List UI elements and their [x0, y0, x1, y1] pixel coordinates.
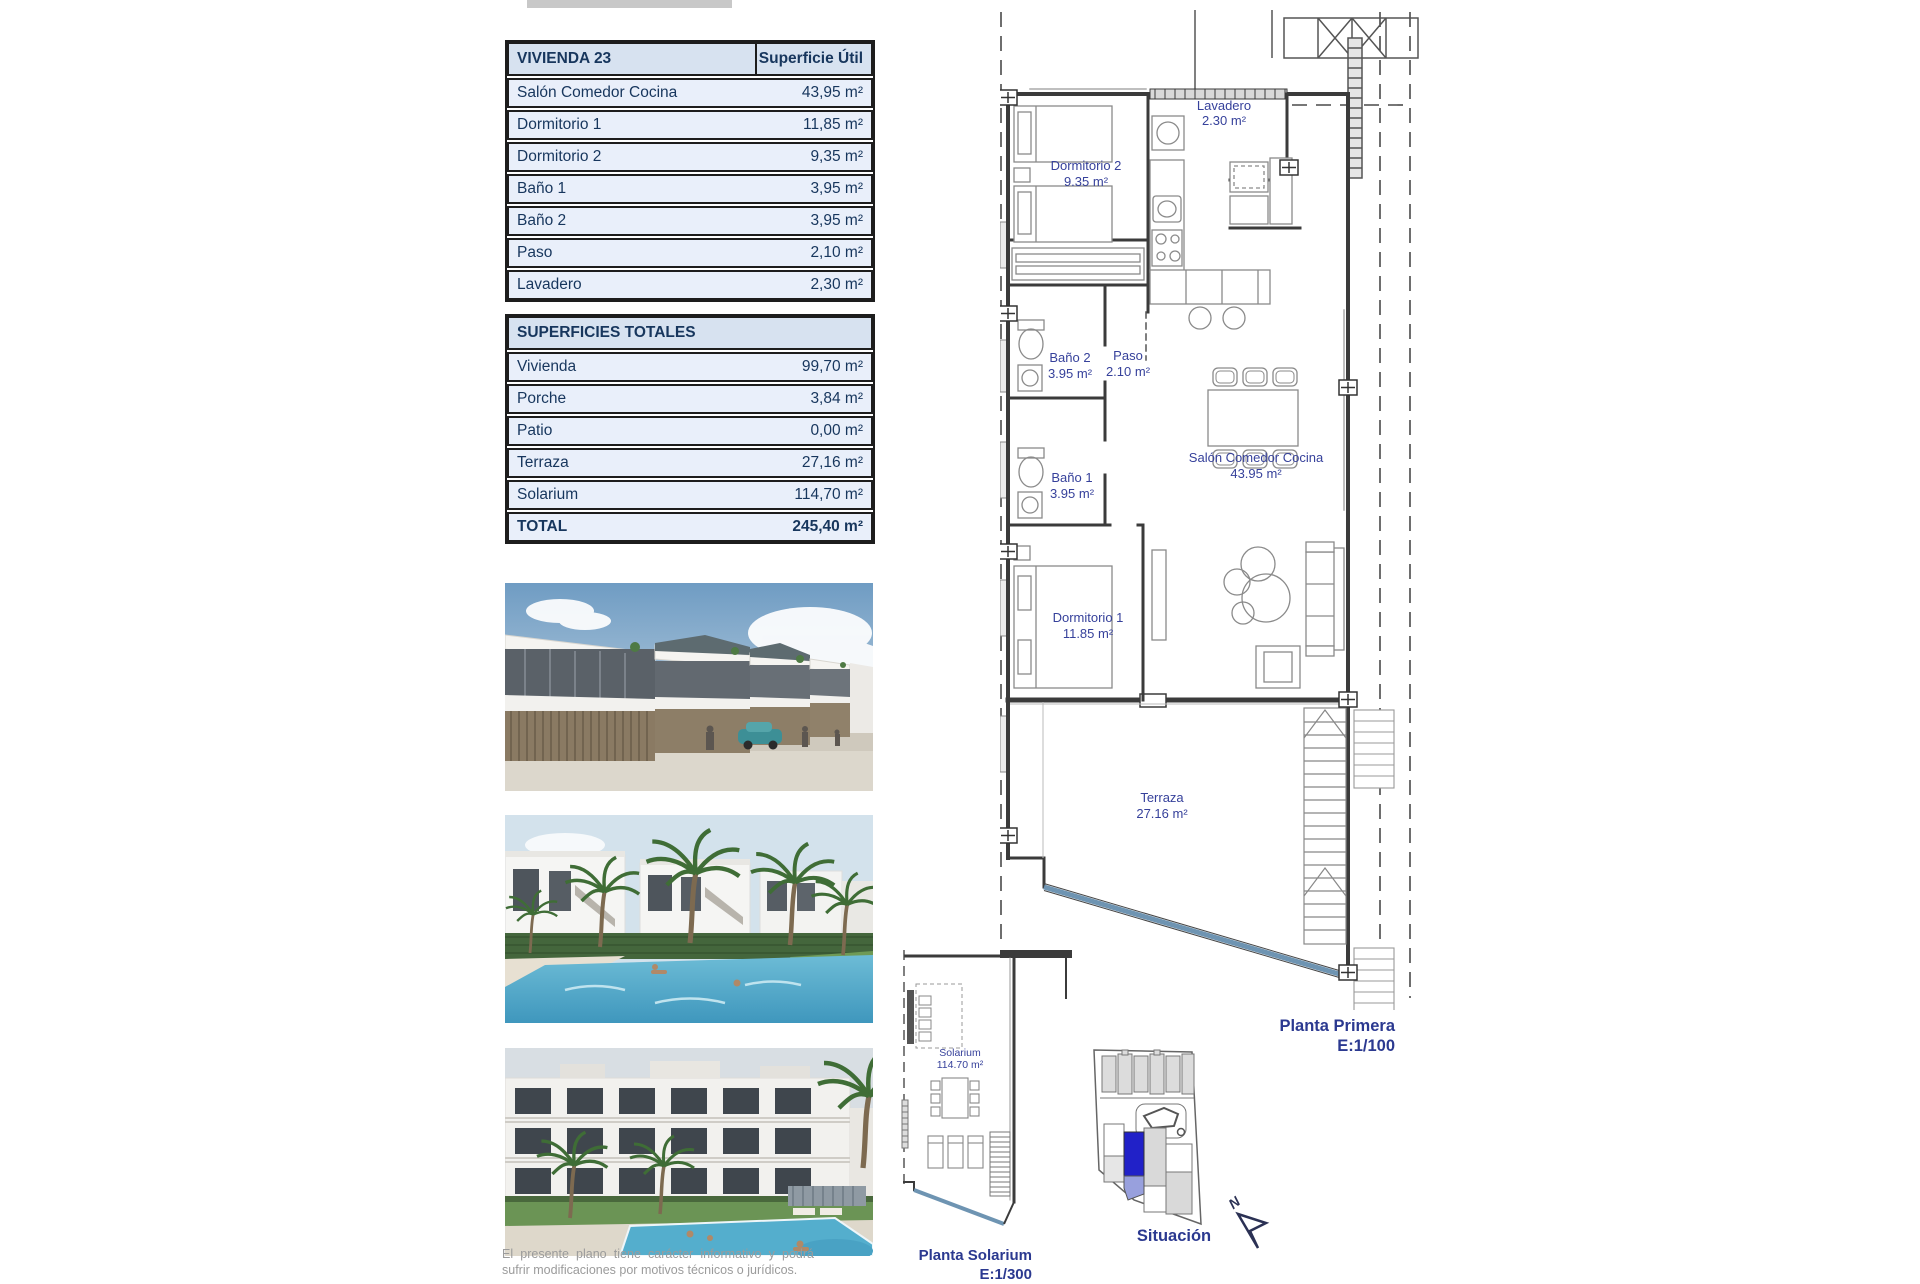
svg-text:11.85 m²: 11.85 m²: [1063, 626, 1114, 641]
svg-text:2.30 m²: 2.30 m²: [1202, 113, 1247, 128]
sun-loungers: [928, 1136, 983, 1168]
tv-unit-icon: [1152, 550, 1166, 640]
room-label-salon: Salón Comedor Cocina: [1189, 450, 1324, 465]
highlighted-plot: [1124, 1132, 1144, 1176]
bar-stool-icon: [1223, 307, 1245, 329]
caption-title: Planta Primera: [1255, 1016, 1395, 1036]
neighbour-stairs: [1354, 710, 1394, 1010]
svg-text:3.95 m²: 3.95 m²: [1048, 366, 1093, 381]
coffee-table-icon: [1242, 574, 1290, 622]
table-row: Dormitorio 111,85 m²: [507, 110, 873, 140]
page-top-strip: [527, 0, 732, 8]
solarium-stairs: [990, 1132, 1010, 1196]
kitchen-sink-icon: [1153, 196, 1181, 222]
svg-text:114.70 m²: 114.70 m²: [937, 1059, 984, 1071]
solarium-lattice: [902, 1100, 908, 1148]
table-row: Baño 13,95 m²: [507, 174, 873, 204]
site-buildings: [1100, 1050, 1194, 1098]
room-label-dormitorio2: Dormitorio 2: [1051, 158, 1122, 173]
bathroom-fixtures: [1018, 320, 1044, 518]
site-plan-caption: Situación: [1132, 1226, 1216, 1246]
svg-text:2.10 m²: 2.10 m²: [1106, 364, 1151, 379]
solarium-label: Solarium 114.70 m²: [937, 1047, 984, 1071]
room-label-paso: Paso: [1113, 348, 1143, 363]
unit-table-header-value: Superficie Útil: [755, 44, 871, 74]
unit-table-header: VIVIENDA 23 Superficie Útil: [507, 42, 873, 76]
pool: [505, 955, 873, 1023]
table-row: Baño 23,95 m²: [507, 206, 873, 236]
table-row: Vivienda99,70 m²: [507, 352, 873, 382]
table-row: Solarium114,70 m²: [507, 480, 873, 510]
room-label-bano2: Baño 2: [1049, 350, 1090, 365]
svg-text:Solarium: Solarium: [939, 1047, 981, 1059]
table-row: Dormitorio 29,35 m²: [507, 142, 873, 172]
table-row: Patio0,00 m²: [507, 416, 873, 446]
totals-table-title: SUPERFICIES TOTALES: [509, 324, 871, 342]
room-label-dormitorio1: Dormitorio 1: [1053, 610, 1124, 625]
table-row: Lavadero2,30 m²: [507, 270, 873, 300]
solarium-dining: [931, 1078, 979, 1118]
site-plan: [1092, 1048, 1232, 1228]
north-arrow: N: [1222, 1190, 1278, 1252]
disclaimer-text: El presente plano tiene carácter informa…: [502, 1246, 814, 1278]
render-photo-1: [505, 583, 873, 791]
solarium-bar: [907, 984, 962, 1048]
svg-text:27.16 m²: 27.16 m²: [1136, 806, 1188, 821]
room-label-lavadero: Lavadero: [1197, 98, 1251, 113]
solarium-plan: Solarium 114.70 m²: [900, 950, 1035, 1245]
caption-scale: E:1/100: [1255, 1036, 1395, 1056]
svg-text:3.95 m²: 3.95 m²: [1050, 486, 1095, 501]
room-label-terraza: Terraza: [1140, 790, 1184, 805]
terrace-stairs: [1304, 708, 1346, 944]
bar-stool-icon: [1189, 307, 1211, 329]
floor-plan-caption: Planta Primera E:1/100: [1255, 1016, 1395, 1056]
svg-text:9.35 m²: 9.35 m²: [1064, 174, 1109, 189]
table-row: Paso2,10 m²: [507, 238, 873, 268]
unit-table-title: VIVIENDA 23: [509, 50, 755, 68]
svg-text:43.95 m²: 43.95 m²: [1230, 466, 1282, 481]
kitchen: [1150, 116, 1292, 329]
terrace-edge: [1010, 702, 1346, 980]
north-arrow-icon: [1238, 1214, 1266, 1248]
render-photo-3: [505, 1048, 873, 1256]
living-room-furniture: [1152, 542, 1344, 688]
solarium-caption: Planta Solarium E:1/300: [902, 1246, 1032, 1284]
render-photo-2: [505, 815, 873, 1023]
table-total-row: TOTAL245,40 m²: [507, 512, 873, 542]
north-label: N: [1225, 1193, 1244, 1212]
table-row: Salón Comedor Cocina43,95 m²: [507, 78, 873, 108]
unit-areas-table: VIVIENDA 23 Superficie Útil Salón Comedo…: [505, 40, 875, 302]
bedroom2-furniture: [1012, 106, 1144, 280]
wardrobe-icon: [1012, 248, 1144, 280]
totals-table-header: SUPERFICIES TOTALES: [507, 316, 873, 350]
floor-plan-planta-primera: Lavadero 2.30 m² Dormitorio 2 9.35 m² Ba…: [1000, 10, 1420, 1010]
table-row: Terraza27,16 m²: [507, 448, 873, 478]
room-label-bano1: Baño 1: [1051, 470, 1092, 485]
totals-table: SUPERFICIES TOTALES Vivienda99,70 m² Por…: [505, 314, 875, 544]
table-row: Porche3,84 m²: [507, 384, 873, 414]
